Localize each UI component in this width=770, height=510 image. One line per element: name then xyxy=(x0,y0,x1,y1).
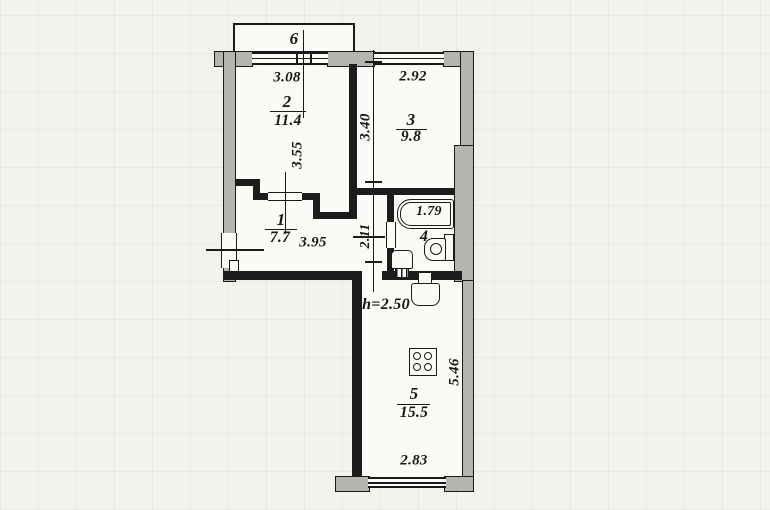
kitchen-depth-dim: 5.46 xyxy=(447,358,464,385)
kitchen-window-width-dim: 2.83 xyxy=(400,453,427,470)
hall-number: 1 xyxy=(277,210,286,230)
bathroom-number: 4 xyxy=(420,228,428,246)
balcony-number: 6 xyxy=(290,29,299,49)
room3-area: 9.8 xyxy=(401,128,421,146)
stove-icon xyxy=(409,348,437,376)
dim-tick xyxy=(365,181,382,183)
entrance-dim-line xyxy=(206,249,264,251)
kitchen-number: 5 xyxy=(410,384,419,404)
window-mullion xyxy=(296,54,298,63)
stove-burner xyxy=(424,363,432,371)
window-glazing-line xyxy=(252,58,328,59)
washbasin-pedestal xyxy=(395,268,409,278)
kitchen-window xyxy=(368,477,446,488)
window-glazing-line xyxy=(368,482,446,483)
stove-burner xyxy=(424,352,432,360)
bathroom-door-opening xyxy=(386,222,396,248)
dim-tick xyxy=(365,261,382,263)
room2-balcony-window xyxy=(252,52,328,65)
outer-wall-bottom-right xyxy=(444,476,474,492)
room2-depth-dim: 3.55 xyxy=(290,141,307,168)
wall-hall-bottom xyxy=(223,271,362,280)
room3-window xyxy=(374,52,444,65)
window-mullion xyxy=(310,54,312,63)
floor-plan-scan: 6 2 11.4 3 9.8 1 7.7 4 5 15.5 3.08 3.55 … xyxy=(0,0,770,510)
kitchen-area: 15.5 xyxy=(400,404,428,422)
corridor-depth-dim: 2.11 xyxy=(358,224,374,249)
window-glazing-line xyxy=(374,58,444,59)
dim-tick xyxy=(365,61,382,63)
outer-wall-right-upper xyxy=(460,51,474,147)
outer-wall-right-mid xyxy=(454,145,474,282)
stove-burner xyxy=(413,352,421,360)
room2-number: 2 xyxy=(283,92,292,112)
wall-room2-hall-b xyxy=(253,193,269,200)
wall-room2-hall-d xyxy=(313,212,353,219)
outer-wall-right-lower xyxy=(462,280,474,492)
wall-kitchen-left xyxy=(352,271,362,477)
hall-length-dim: 3.95 xyxy=(299,235,326,252)
room3-width-dim: 2.92 xyxy=(399,69,426,86)
stove-burner xyxy=(413,363,421,371)
wall-niche xyxy=(229,260,239,272)
washbasin xyxy=(391,250,413,269)
wall-room3-bottom xyxy=(349,188,455,195)
room2-area: 11.4 xyxy=(274,112,301,130)
balcony-dim-line xyxy=(303,30,305,118)
right-dim-line xyxy=(373,50,375,292)
outer-wall-bottom-left-flange xyxy=(335,476,370,492)
balcony-width-dim: 3.08 xyxy=(273,70,300,87)
hall-area: 7.7 xyxy=(270,229,290,247)
toilet-bowl-circle xyxy=(430,243,442,255)
wall-room2-room3 xyxy=(349,64,357,219)
bathtub-length-dim: 1.79 xyxy=(416,204,442,220)
kitchen-sink xyxy=(411,283,440,306)
ceiling-height-note: h=2.50 xyxy=(362,296,410,314)
room3-number: 3 xyxy=(407,110,416,130)
room3-depth-dim: 3.40 xyxy=(358,113,375,140)
